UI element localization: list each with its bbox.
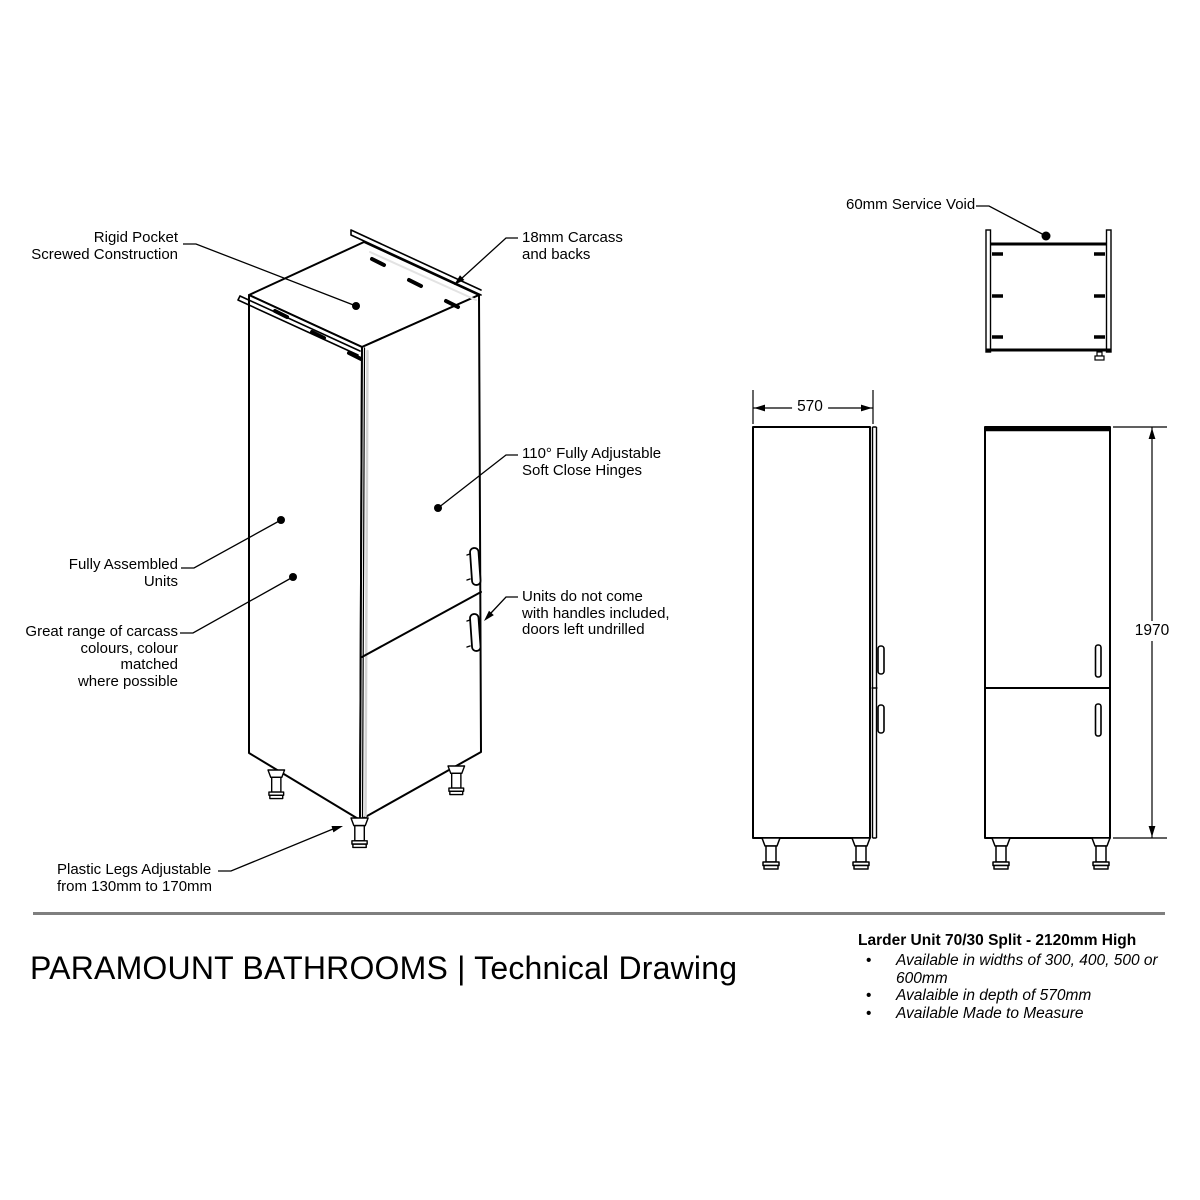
- side-view-carcass: [753, 427, 870, 838]
- product-heading: Larder Unit 70/30 Split - 2120mm High: [858, 932, 1198, 950]
- label-plastic-legs: Plastic Legs Adjustable from 130mm to 17…: [57, 862, 212, 895]
- label-carcass-colours: Great range of carcass colours, colour m…: [20, 624, 178, 690]
- label-service-void: 60mm Service Void: [846, 197, 975, 214]
- product-bullet-text: Available Made to Measure: [896, 1005, 1084, 1023]
- dimension-depth-570: 570: [792, 397, 828, 417]
- top-view-leg: [1095, 352, 1104, 360]
- iso-front-face: [360, 295, 481, 820]
- footer-divider: [33, 912, 1165, 915]
- iso-leg-front: [351, 818, 368, 847]
- page-title: PARAMOUNT BATHROOMS | Technical Drawing: [30, 950, 737, 987]
- product-bullet: Available in widths of 300, 400, 500 or …: [858, 952, 1198, 987]
- product-bullet-list: Available in widths of 300, 400, 500 or …: [858, 952, 1198, 1022]
- side-view-leg-left: [762, 838, 780, 869]
- side-view-door-edge: [873, 427, 877, 838]
- top-view-left-panel: [986, 230, 991, 352]
- iso-left-face: [249, 295, 362, 820]
- product-bullet: Avalaible in depth of 570mm: [858, 987, 1198, 1005]
- label-carcass: 18mm Carcass and backs: [522, 230, 623, 263]
- product-bullet: Available Made to Measure: [858, 1005, 1198, 1023]
- front-view-leg-left: [992, 838, 1010, 869]
- front-view-leg-right: [1092, 838, 1110, 869]
- side-view-handles: [878, 646, 884, 733]
- product-bullet-text: Avalaible in depth of 570mm: [896, 987, 1091, 1005]
- side-view-leg-right: [852, 838, 870, 869]
- dimension-height-1970: 1970: [1130, 621, 1174, 641]
- top-view-right-panel: [1107, 230, 1112, 352]
- top-view-screw-slots: [992, 254, 1105, 337]
- side-view: [753, 427, 884, 869]
- isometric-view: [238, 230, 481, 847]
- front-view: [985, 427, 1110, 869]
- iso-leg-left: [268, 770, 285, 799]
- label-handles-note: Units do not come with handles included,…: [522, 589, 670, 639]
- top-view: [986, 230, 1111, 360]
- front-view-carcass: [985, 427, 1110, 838]
- label-fully-assembled: Fully Assembled Units: [28, 557, 178, 590]
- label-hinges: 110° Fully Adjustable Soft Close Hinges: [522, 446, 661, 479]
- label-rigid-pocket: Rigid Pocket Screwed Construction: [28, 230, 178, 263]
- product-info: Larder Unit 70/30 Split - 2120mm High Av…: [858, 932, 1198, 1022]
- product-bullet-text: Available in widths of 300, 400, 500 or …: [896, 952, 1198, 987]
- drawing-sheet: Rigid Pocket Screwed Construction 18mm C…: [0, 0, 1200, 1200]
- iso-leg-right: [448, 766, 465, 795]
